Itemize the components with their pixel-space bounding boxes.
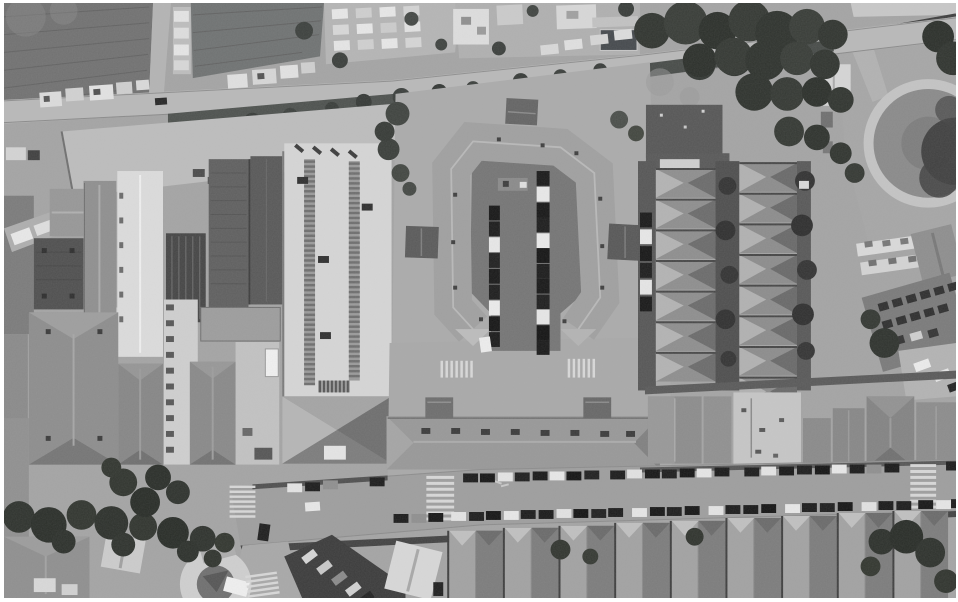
screenshot-frame (0, 0, 958, 602)
aerial-orthophoto (4, 3, 956, 598)
photo-grain (4, 3, 956, 598)
